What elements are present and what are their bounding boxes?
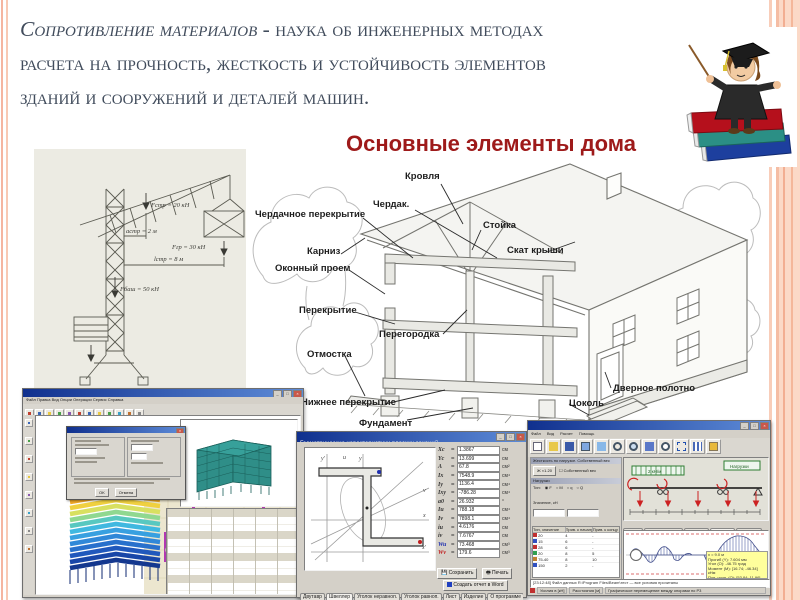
toolbar-open-icon[interactable] [546,439,561,454]
value-label: Значение, кН [533,500,558,505]
parameters-dialog: × OK Отмена [66,426,186,500]
status-bar: Усилия в [кН] Расстояния [м] Графическое… [530,587,766,594]
radio-F[interactable]: ◉ F [545,485,552,490]
prop-row: Wu=73.468см³ [438,541,522,550]
tool-icon[interactable] [25,419,33,427]
label-partition: Перегородка [379,329,439,340]
label-roof-slope: Скат крыши [507,245,564,256]
toolbar-new-icon[interactable] [530,439,545,454]
radio-M[interactable]: ○ M [556,485,563,490]
force-arrows [638,491,759,506]
foundation-block [539,400,555,418]
tab-section-type[interactable]: Лист [443,593,460,600]
minimize-icon[interactable]: _ [496,433,505,441]
title-term: Сопротивление материалов [20,17,257,41]
prop-row: Ix=7548.9см⁴ [438,472,522,481]
label-foundation: Фундамент [359,418,412,429]
value-input[interactable] [533,509,565,517]
supports [658,488,762,495]
prop-row: Yc=13.699см [438,455,522,464]
prop-row: Iv=7898.1см⁴ [438,515,522,524]
prop-row: iu=4.6176см [438,523,522,532]
house-diagram: Кровля Чердак. Чердачное перекрытие Стой… [245,158,767,445]
beam-left-panel: Жесткость по нагрузке. Собственный вес Ж… [530,457,622,580]
section-properties-list: Xc=1.3867см Yc=13.699см A=67.8см² Ix=754… [438,446,522,558]
fem-tool-column [24,415,34,595]
prop-value-field[interactable]: 4.6176 [457,523,500,532]
crane-dim-l-label: lстр = 8 м [154,256,183,263]
foundation-block [462,398,478,418]
graduate-cartoon [683,27,797,167]
beam-title-bar[interactable]: Beam v.2.1.0.164 _ □ × [528,421,770,430]
status-forces: Усилия в [кН] [537,587,567,594]
tab-section-type[interactable]: Уголок равноп. [401,593,442,600]
fem-canvas: × OK Отмена [35,415,301,595]
crane-load-cargo-label: Fгр = 30 кН [171,244,206,251]
toolbar-section-icon[interactable] [690,439,705,454]
title-line1: - наука об инженерных методах [257,17,543,41]
label-attic-floor: Чердачное перекрытие [255,209,365,220]
minimize-icon[interactable]: _ [273,390,282,397]
toolbar-search-icon[interactable] [658,439,673,454]
label-plinth: Цоколь [569,398,604,409]
slide-title: Сопротивление материалов - наука об инже… [20,12,700,114]
prop-row: Xc=1.3867см [438,446,522,455]
tool-icon[interactable] [25,473,33,481]
panel-caption: Жесткость по нагрузке. Собственный вес [531,458,621,464]
status-hint: Графическое перемещение между опорами по… [605,587,766,594]
prop-value-field[interactable]: 7548.9 [457,472,500,481]
prop-value-field[interactable]: 179.6 [457,549,500,558]
label-cornice: Карниз [307,246,340,257]
section-type-tabs: ДвутаврШвеллерУголок неравноп.Уголок рав… [300,585,523,600]
legend-label: Нагрузки [730,464,749,469]
menu-file[interactable]: Файл [531,430,541,438]
dialog-input[interactable] [131,453,147,460]
prop-value-field[interactable]: 73.468 [457,541,500,550]
axis-label: x' [421,545,427,551]
dialog-ok-button[interactable]: OK [95,488,109,497]
prop-value-field[interactable]: 1136.4 [457,480,500,489]
maximize-icon[interactable]: □ [506,433,515,441]
dialog-input[interactable] [131,444,153,451]
status-distances: Расстояния [м] [569,587,603,594]
close-icon[interactable]: × [516,433,525,441]
close-icon[interactable]: × [176,428,184,433]
axis-label: v [423,488,426,494]
toolbar-frame-icon[interactable] [674,439,689,454]
menu-view[interactable]: Вид [547,430,554,438]
label-lower-floor: Нижнее перекрытие [301,397,396,408]
distributed-load-label: 2 кН/м [648,469,661,474]
status-led-icon [530,588,535,593]
label-post: Стойка [483,220,516,231]
section-window-title: Геометрические характеристики плоских се… [297,441,438,442]
dialog-group-left [71,437,125,477]
wall-above-window [385,263,395,284]
stiffness-button[interactable]: Ж ×1.20 [533,466,556,476]
prop-row: Iu=788.18см⁴ [438,506,522,515]
tool-icon[interactable] [25,509,33,517]
beam-toolbar [528,438,770,457]
type-label: Тип: [533,485,541,490]
own-weight-checkbox[interactable]: ☐ Собственный вес [559,466,596,476]
toolbar-beam-icon[interactable] [706,439,721,454]
axis-label: y' [320,456,326,462]
dialog-cancel-button[interactable]: Отмена [115,488,137,497]
prop-value-field[interactable]: 13.699 [457,455,500,464]
section-heading: Основные элементы дома [333,131,649,157]
crane-drawing: Fстр = 20 кН aстр = 2 м Fгр = 30 кН lстр… [34,149,246,401]
toolbar-zoom-icon[interactable] [610,439,625,454]
title-line2: расчета на прочность, жесткость и устойч… [20,51,546,75]
presentation-slide: Сопротивление материалов - наука об инже… [0,0,800,600]
axis-label: u [343,455,346,461]
radio-q[interactable]: ○ q [567,485,573,490]
results-table [166,508,301,595]
label-roofing: Кровля [405,171,440,182]
label-door-leaf: Дверное полотно [613,383,695,394]
frame-model-teal [181,420,295,504]
toolbar-copy-icon[interactable] [578,439,593,454]
toolbar-zoomin-icon[interactable] [626,439,641,454]
toolbar-select-icon[interactable] [642,439,657,454]
fem-title-bar[interactable]: _ □ × [23,389,303,397]
dialog-input[interactable] [75,448,97,455]
tab-section-type[interactable]: Швеллер [326,593,353,600]
dialog-group-right [127,437,181,477]
section-title-bar[interactable]: Геометрические характеристики плоских се… [297,432,526,442]
beam-scheme-panel: 2 кН/м Нагрузки [623,457,769,521]
prop-value-field[interactable]: 67.8 [457,463,500,472]
prop-value-field[interactable]: 7898.1 [457,515,500,524]
tool-icon[interactable] [25,491,33,499]
close-icon[interactable]: × [293,390,302,397]
beam-app-window: Beam v.2.1.0.164 _ □ × Файл Вид Расчет П… [527,420,771,596]
tab-section-type[interactable]: Двутавр [300,593,325,600]
menu-calc[interactable]: Расчет [560,430,573,438]
crane-figure: Fстр = 20 кН aстр = 2 м Fгр = 30 кН lстр… [34,149,246,401]
fem-menu-bar[interactable]: Файл Правка Вид Опции Операции Сервис Сп… [23,397,303,404]
dimension-ruler [630,509,760,515]
label-attic: Чердак. [373,199,409,210]
tab-section-type[interactable]: О программе [487,593,523,600]
prop-row: Ixy=-786.28см⁴ [438,489,522,498]
tab-section-type[interactable]: Изделие [461,593,487,600]
center-column [466,328,474,386]
close-icon[interactable]: × [760,422,769,430]
channel-section-shape [319,468,423,546]
label-window-opening: Оконный проем [275,263,350,274]
prop-row: a0=26.932° [438,498,522,507]
section-props-window: Геометрические характеристики плоских се… [296,431,527,598]
prop-value-field[interactable]: 26.932 [457,498,500,507]
prop-row: Iy=1136.4см⁴ [438,480,522,489]
prop-row: iv=7.6767см [438,532,522,541]
beam-menu-bar: Файл Вид Расчет Помощь [528,430,770,438]
value-tooltip: x = 9.0 м Прогиб (Y): 7.604 мм Угол (O):… [706,551,768,579]
left-border-stripes [0,0,10,600]
tool-icon[interactable] [25,527,33,535]
tool-icon[interactable] [25,455,33,463]
value-marker [631,550,642,561]
title-line3: зданий и сооружений и деталей машин. [20,85,369,109]
menu-help[interactable]: Помощь [579,430,594,438]
prop-row: Wv=179.6см³ [438,549,522,558]
crane-load-jib-label: Fстр = 20 кН [150,202,190,209]
crane-load-tower-label: Fбаш = 50 кН [119,286,159,293]
fem-app-window: _ □ × Файл Правка Вид Опции Операции Сер… [22,388,304,598]
tool-icon[interactable] [25,437,33,445]
crane-dim-a-label: aстр = 2 м [126,228,157,235]
value-input2[interactable] [567,509,599,517]
loads-table: Тип, значение Прив. к началу Прив. к кон… [532,526,620,578]
fem-toolbar [23,404,303,415]
load-row[interactable]: 1502- [533,563,619,568]
dialog-title-bar[interactable]: × [67,427,185,433]
toolbar-save-icon[interactable] [562,439,577,454]
prop-value-field[interactable]: 788.18 [457,506,500,515]
prop-value-field[interactable]: 1.3867 [457,446,500,455]
maximize-icon[interactable]: □ [750,422,759,430]
graduate-illustration [683,27,797,167]
partition-wall [466,271,474,326]
maximize-icon[interactable]: □ [283,390,292,397]
moment-diagram-panel: x = 9.0 м Прогиб (Y): 7.604 мм Угол (O):… [623,530,769,580]
prop-row: A=67.8см² [438,463,522,472]
radio-Q[interactable]: ○ Q [576,485,583,490]
tab-section-type[interactable]: Уголок неравноп. [354,593,400,600]
axis-label: x [422,513,426,519]
label-blind-area: Отмостка [307,349,352,360]
label-floor: Перекрытие [299,305,357,316]
minimize-icon[interactable]: _ [740,422,749,430]
toolbar-paste-icon[interactable] [594,439,609,454]
model-subwindow [180,419,298,507]
section-canvas: y' u y v x x' [304,447,436,571]
prop-value-field[interactable]: 7.6767 [457,532,500,541]
tool-icon[interactable] [25,545,33,553]
prop-value-field[interactable]: -786.28 [457,489,500,498]
axis-label: y [358,456,362,462]
